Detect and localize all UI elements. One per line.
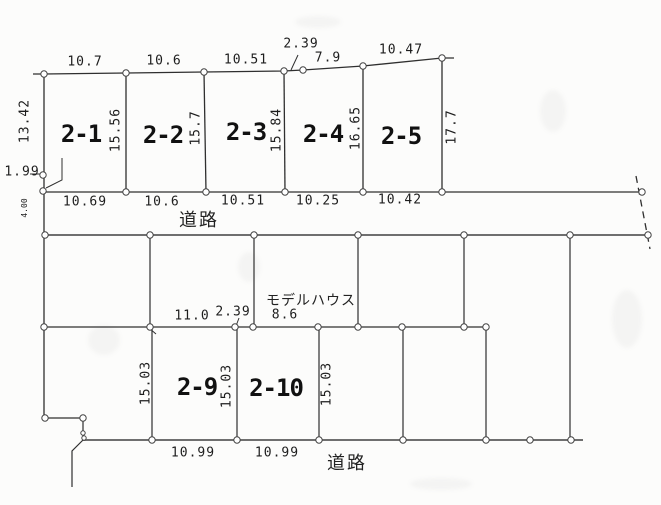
block1-boundary-lines (33, 58, 642, 418)
plot-label-2-3: 2-3 (226, 120, 266, 144)
dim-b2-side-2: 15.03 (221, 364, 234, 408)
middle-block-lines (44, 235, 570, 440)
dim-top-6: 10.47 (379, 44, 423, 57)
survey-point-markers (40, 55, 651, 443)
dim-bottom-2: 10.6 (144, 196, 179, 209)
dim-road-width: 4.00 (21, 198, 29, 217)
dim-bottom-5: 10.42 (378, 194, 422, 207)
road-edge-lines (45, 235, 648, 440)
dim-b2-bottom-1: 10.99 (171, 447, 215, 460)
dim-side-6: 17.7 (446, 109, 459, 144)
dim-b2-top-1: 11.0 (174, 310, 209, 323)
dim-left-offset: 1.99 (4, 166, 39, 179)
road-label-top: 道路 (179, 211, 219, 229)
parcel-map-drawing (0, 0, 661, 505)
dim-bottom-1: 10.69 (63, 196, 107, 209)
plot-label-2-4: 2-4 (303, 122, 343, 146)
land-subdivision-plan: 10.7 10.6 10.51 2.39 7.9 10.47 10.69 10.… (0, 0, 661, 505)
dim-side-3: 15.7 (190, 110, 203, 145)
dim-top-1: 10.7 (67, 56, 102, 69)
dim-side-5: 16.65 (350, 106, 363, 150)
dim-b2-side-1: 15.03 (140, 361, 153, 405)
block2-boundary-lines (44, 327, 486, 487)
dim-top-3: 10.51 (224, 54, 268, 67)
dim-top-5: 7.9 (315, 52, 341, 65)
dim-top-2: 10.6 (146, 55, 181, 68)
dim-bottom-4: 10.25 (296, 195, 340, 208)
dim-side-4: 15.84 (271, 108, 284, 152)
dim-b2-side-3: 15.03 (321, 362, 334, 406)
plot-label-2-9: 2-9 (177, 375, 217, 399)
dim-bottom-3: 10.51 (221, 195, 265, 208)
dim-side-1: 13.42 (19, 99, 32, 143)
dim-side-2: 15.56 (110, 108, 123, 152)
plot-label-2-2: 2-2 (143, 123, 183, 147)
dim-b2-top-2: 2.39 (215, 306, 250, 319)
road-label-bottom: 道路 (327, 454, 367, 472)
dim-top-4: 2.39 (283, 38, 318, 51)
model-house-label: モデルハウス (266, 293, 356, 307)
plot-label-2-5: 2-5 (381, 124, 421, 148)
plot-label-2-10: 2-10 (249, 376, 303, 400)
plot-label-2-1: 2-1 (61, 122, 101, 146)
dim-b2-top-3: 8.6 (272, 309, 298, 322)
dim-b2-bottom-2: 10.99 (255, 447, 299, 460)
